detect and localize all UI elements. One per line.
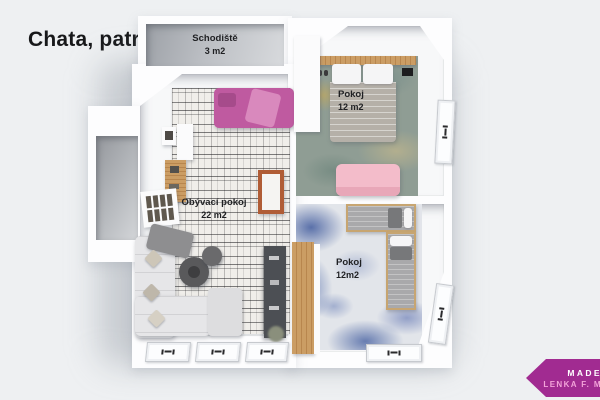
room-name: Obývací pokoj (164, 196, 264, 209)
plant (268, 326, 284, 342)
room-name: Pokoj (336, 256, 382, 269)
wall-art (162, 127, 176, 145)
daybed-pillow (218, 93, 236, 107)
coffee-table-decor (188, 266, 200, 278)
room-area: 3 m2 (146, 45, 284, 58)
window (245, 342, 289, 362)
window-dimension-mark (388, 351, 401, 356)
room-name: Schodiště (146, 32, 284, 45)
wood-floor-strip (292, 242, 314, 354)
window-dimension-mark (211, 350, 225, 355)
loveseat-back (336, 187, 400, 196)
floor-plan-render: Chata, patro Schodiště 3 m2 (0, 0, 600, 400)
drawer (147, 210, 153, 222)
window-dimension-mark (438, 307, 445, 321)
bed-pillow (388, 208, 402, 228)
wall-art-image (165, 131, 173, 140)
window (434, 100, 455, 165)
window (366, 344, 422, 362)
room-label-living: Obývací pokoj 22 m2 (164, 196, 264, 222)
single-bed (386, 232, 416, 310)
drawer (146, 196, 152, 208)
partition-wall (314, 244, 320, 354)
bed-pillow (363, 64, 393, 84)
daybed-throw (244, 88, 281, 128)
room-area: 22 m2 (164, 209, 264, 222)
coffee-table-small (202, 246, 222, 266)
window (195, 342, 241, 362)
room-alcove-floor (96, 136, 138, 240)
corner-sofa-bottom (135, 296, 211, 336)
single-bed (346, 204, 416, 232)
wardrobe (294, 36, 320, 132)
slipper (324, 70, 328, 76)
bed-pillow (332, 64, 361, 84)
radio (402, 68, 413, 76)
tv-unit (264, 246, 286, 338)
drawer (153, 195, 159, 207)
window-dimension-mark (260, 350, 274, 355)
bed-pillow (404, 208, 412, 228)
desk-item (170, 166, 179, 173)
tall-cabinet (177, 124, 193, 160)
watermark-ribbon: MADE LENKA F. M (526, 359, 600, 397)
window (145, 342, 191, 362)
room-area: 12 m2 (338, 101, 384, 114)
daybed (214, 88, 294, 128)
ottoman (208, 288, 242, 336)
window-dimension-mark (442, 125, 448, 138)
room-label-bedroom-bottom: Pokoj 12m2 (336, 256, 382, 282)
room-label-bedroom-top: Pokoj 12 m2 (338, 88, 384, 114)
watermark-line1: MADE (567, 368, 600, 378)
bed-pillow (390, 247, 412, 260)
room-name: Pokoj (338, 88, 384, 101)
shelf-item (269, 306, 279, 310)
shelf-item (269, 256, 279, 260)
page-title: Chata, patro (28, 28, 153, 52)
shelf-item (270, 280, 279, 285)
loveseat (336, 164, 400, 196)
room-area: 12m2 (336, 269, 382, 282)
drawer (154, 209, 160, 221)
room-label-staircase: Schodiště 3 m2 (146, 32, 284, 58)
bed-pillow (390, 236, 412, 246)
window-dimension-mark (161, 350, 175, 355)
watermark-line2: LENKA F. M (543, 380, 600, 389)
